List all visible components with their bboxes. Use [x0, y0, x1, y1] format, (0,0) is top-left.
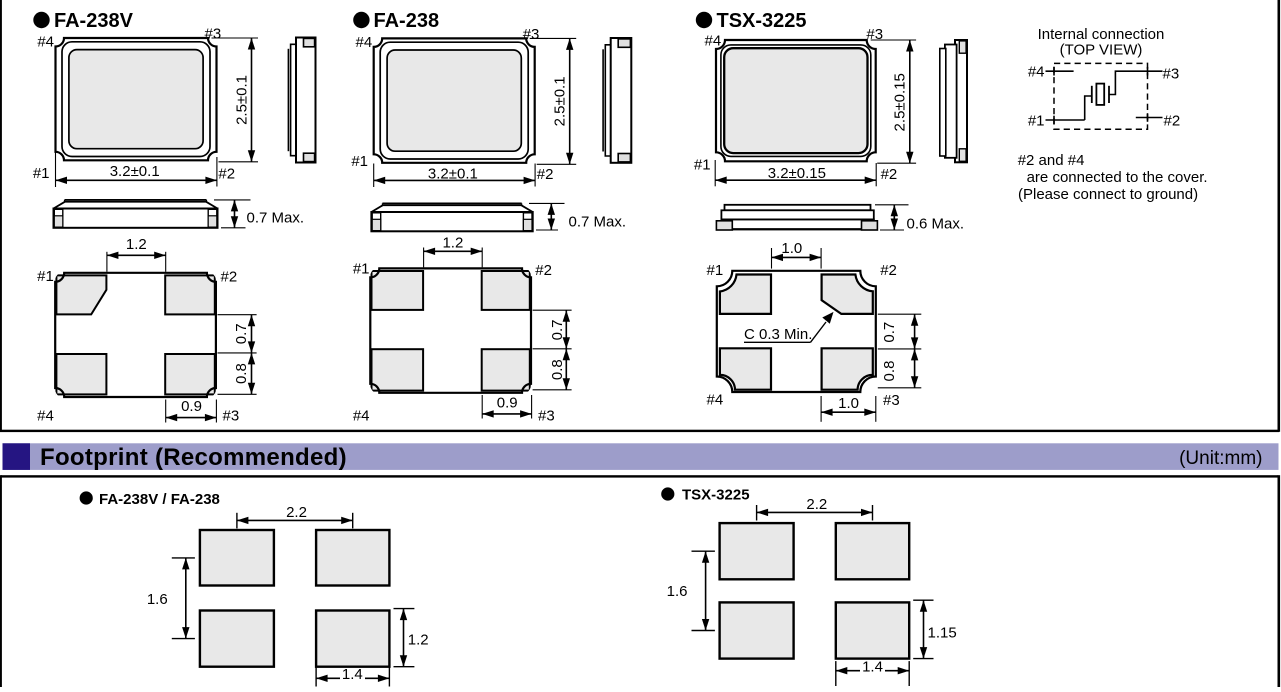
svg-text:#2 and #4: #2 and #4: [1018, 152, 1085, 169]
svg-text:0.8: 0.8: [881, 361, 898, 382]
svg-text:#2: #2: [535, 262, 552, 279]
svg-text:#3: #3: [1163, 65, 1180, 82]
svg-text:#1: #1: [33, 165, 50, 182]
svg-text:0.7 Max.: 0.7 Max.: [569, 214, 627, 231]
svg-text:#1: #1: [707, 262, 724, 279]
svg-text:1.4: 1.4: [342, 666, 363, 683]
svg-text:0.9: 0.9: [497, 394, 518, 411]
svg-text:Footprint (Recommended): Footprint (Recommended): [40, 444, 347, 471]
svg-text:0.7: 0.7: [549, 319, 566, 340]
svg-text:#3: #3: [223, 408, 240, 425]
svg-text:1.6: 1.6: [667, 583, 688, 600]
svg-text:#4: #4: [353, 408, 370, 425]
svg-text:#1: #1: [353, 261, 370, 278]
svg-text:3.2±0.1: 3.2±0.1: [110, 163, 160, 180]
svg-text:2.5±0.1: 2.5±0.1: [233, 75, 250, 125]
svg-text:3.2±0.1: 3.2±0.1: [428, 165, 478, 182]
svg-text:FA-238V: FA-238V: [54, 10, 134, 32]
svg-text:#2: #2: [880, 262, 897, 279]
svg-text:3.2±0.15: 3.2±0.15: [768, 165, 826, 182]
svg-text:#3: #3: [205, 26, 222, 43]
svg-text:#1: #1: [1028, 113, 1045, 130]
svg-text:#2: #2: [881, 166, 898, 183]
svg-text:0.8: 0.8: [549, 359, 566, 380]
svg-text:#2: #2: [221, 269, 238, 286]
svg-text:#3: #3: [523, 26, 540, 43]
svg-text:0.7: 0.7: [881, 322, 898, 343]
svg-text:0.8: 0.8: [233, 363, 250, 384]
svg-text:#2: #2: [218, 166, 235, 183]
svg-text:1.4: 1.4: [862, 659, 883, 676]
svg-text:(Please connect to ground): (Please connect to ground): [1018, 186, 1198, 203]
svg-text:0.7: 0.7: [233, 323, 250, 344]
svg-text:1.2: 1.2: [126, 236, 147, 253]
svg-text:2.5±0.1: 2.5±0.1: [552, 76, 569, 126]
svg-text:FA-238V / FA-238: FA-238V / FA-238: [99, 491, 220, 508]
svg-text:TSX-3225: TSX-3225: [682, 486, 750, 503]
svg-text:#3: #3: [538, 408, 555, 425]
svg-text:2.5±0.15: 2.5±0.15: [892, 73, 909, 131]
svg-text:1.6: 1.6: [147, 591, 168, 608]
svg-text:1.2: 1.2: [408, 632, 429, 649]
svg-text:1.0: 1.0: [781, 240, 802, 257]
svg-text:Internal connection: Internal connection: [1038, 26, 1165, 43]
svg-text:C 0.3 Min.: C 0.3 Min.: [744, 326, 812, 343]
svg-text:1.15: 1.15: [928, 624, 957, 641]
svg-text:1.2: 1.2: [442, 234, 463, 251]
svg-text:0.9: 0.9: [181, 398, 202, 415]
svg-text:#4: #4: [37, 34, 54, 51]
svg-text:#3: #3: [883, 392, 900, 409]
svg-text:0.6 Max.: 0.6 Max.: [907, 216, 965, 233]
svg-text:are connected to the cover.: are connected to the cover.: [1027, 169, 1208, 186]
svg-text:#4: #4: [707, 392, 724, 409]
svg-text:0.7 Max.: 0.7 Max.: [247, 210, 305, 227]
svg-text:1.0: 1.0: [838, 395, 859, 412]
svg-text:#4: #4: [356, 34, 373, 51]
svg-text:#3: #3: [866, 26, 883, 43]
svg-text:#4: #4: [37, 408, 54, 425]
svg-text:#1: #1: [37, 268, 54, 285]
svg-text:2.2: 2.2: [286, 504, 307, 521]
svg-text:#1: #1: [694, 157, 711, 174]
svg-text:#2: #2: [1164, 112, 1181, 129]
svg-text:(Unit:mm): (Unit:mm): [1179, 448, 1262, 469]
svg-text:TSX-3225: TSX-3225: [717, 10, 807, 32]
svg-text:#4: #4: [1028, 63, 1045, 80]
svg-text:(TOP VIEW): (TOP VIEW): [1060, 42, 1143, 59]
svg-text:FA-238: FA-238: [374, 10, 440, 32]
svg-text:#1: #1: [351, 153, 368, 170]
svg-text:#2: #2: [537, 166, 554, 183]
svg-text:#4: #4: [705, 33, 722, 50]
svg-text:2.2: 2.2: [806, 496, 827, 513]
